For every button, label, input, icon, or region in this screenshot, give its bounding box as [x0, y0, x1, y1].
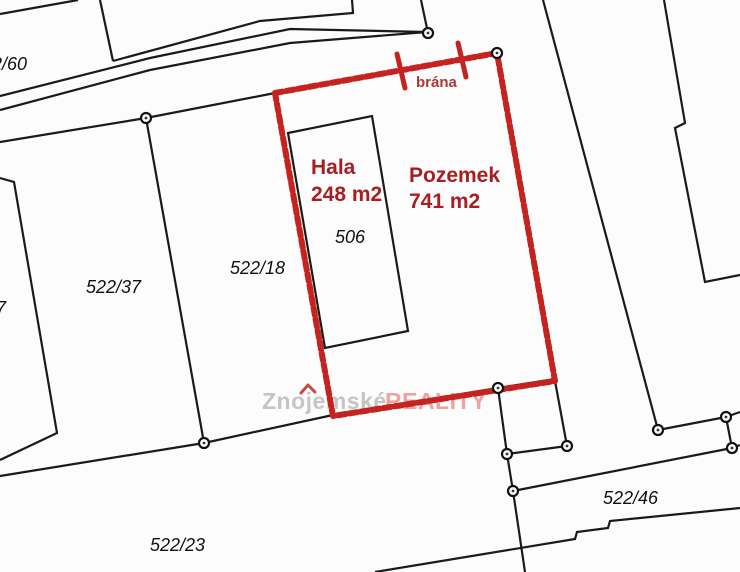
boundary-point-dot — [725, 416, 728, 419]
boundary-point-dot — [566, 445, 569, 448]
boundary-point-dot — [657, 429, 660, 432]
parcel-label-522-37: 522/37 — [86, 277, 142, 297]
parcel-label-522-60: 2/60 — [0, 54, 27, 74]
parcel-label-522-46: 522/46 — [603, 488, 659, 508]
boundary-point-dot — [145, 117, 148, 120]
boundary-point-dot — [496, 52, 499, 55]
parcel-label-522-23: 522/23 — [150, 535, 205, 555]
pozemek-area-label: 741 m2 — [409, 190, 480, 213]
cadastral-map-canvas: Znojemské REALITY 2/60 522/37 7 522/18 5… — [0, 0, 740, 572]
parcel-label-522-18: 522/18 — [230, 258, 285, 278]
boundary-point-dot — [203, 442, 206, 445]
boundary-point-dot — [512, 490, 515, 493]
hala-name-label: Hala — [311, 156, 356, 179]
boundary-point-dot — [506, 453, 509, 456]
parcel-label-west-partial: 7 — [0, 298, 7, 318]
pozemek-name-label: Pozemek — [409, 164, 500, 187]
gate-label: brána — [416, 74, 458, 91]
cadastral-map: Znojemské REALITY 2/60 522/37 7 522/18 5… — [0, 0, 740, 572]
hala-area-label: 248 m2 — [311, 183, 382, 206]
boundary-point-dot — [497, 387, 500, 390]
boundary-point-dot — [731, 447, 734, 450]
boundary-point-dot — [427, 32, 430, 35]
building-label-506: 506 — [335, 227, 366, 247]
